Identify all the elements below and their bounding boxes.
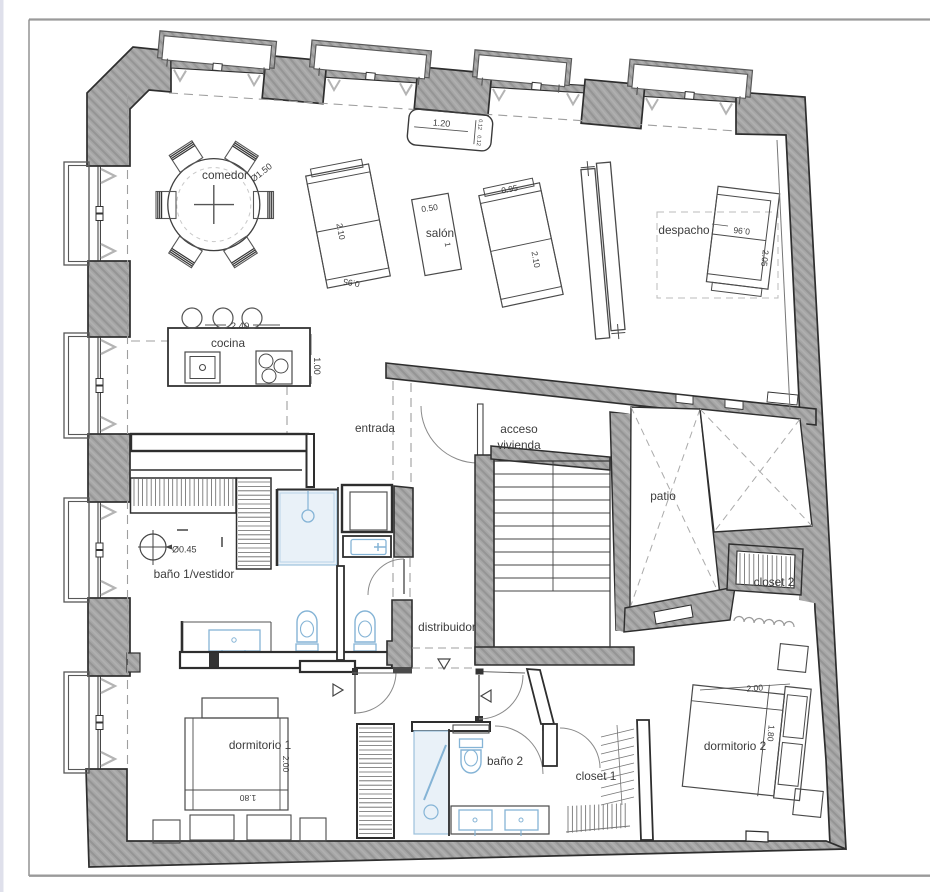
svg-text:2.00: 2.00 <box>281 756 291 773</box>
svg-text:baño 2: baño 2 <box>487 754 523 768</box>
svg-text:2.05: 2.05 <box>759 250 771 268</box>
svg-text:vivienda: vivienda <box>497 438 541 452</box>
svg-text:0.12: 0.12 <box>476 119 483 130</box>
svg-text:2.00: 2.00 <box>746 682 763 693</box>
svg-text:salón: salón <box>426 226 454 240</box>
svg-text:comedor: comedor <box>202 168 248 182</box>
svg-text:closet 2: closet 2 <box>754 575 795 589</box>
svg-text:1.80: 1.80 <box>239 793 256 803</box>
svg-text:distribuidor: distribuidor <box>418 620 476 634</box>
svg-text:2.40: 2.40 <box>231 321 250 332</box>
svg-text:despacho: despacho <box>658 223 710 237</box>
svg-text:baño 1/vestidor: baño 1/vestidor <box>154 567 235 581</box>
svg-text:entrada: entrada <box>355 421 395 435</box>
svg-text:closet 1: closet 1 <box>576 769 617 783</box>
svg-text:1.00: 1.00 <box>312 357 322 375</box>
svg-text:cocina: cocina <box>211 336 246 350</box>
svg-text:0.96: 0.96 <box>733 225 751 237</box>
svg-text:dormitorio 2: dormitorio 2 <box>704 739 766 753</box>
svg-text:Ø0.45: Ø0.45 <box>172 545 197 555</box>
svg-text:dormitorio 1: dormitorio 1 <box>229 738 291 752</box>
svg-text:1.20: 1.20 <box>432 117 450 128</box>
svg-text:0.12: 0.12 <box>475 135 482 146</box>
svg-text:patio: patio <box>650 489 676 503</box>
svg-text:1.80: 1.80 <box>765 725 776 743</box>
svg-text:acceso: acceso <box>500 422 538 436</box>
